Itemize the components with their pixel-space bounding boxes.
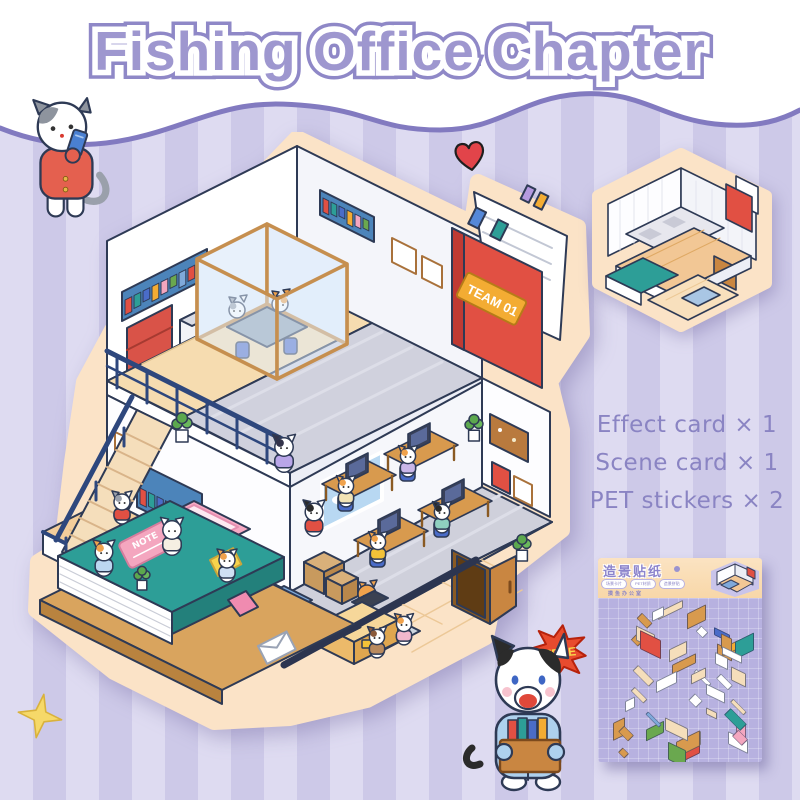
scene-card-illustration: [586, 148, 781, 358]
sticker-item: [656, 671, 677, 694]
sticker-item: [696, 626, 709, 639]
list-item: Effect card × 1: [578, 406, 796, 444]
contents-list: Effect card × 1 Scene card × 1 PET stick…: [578, 406, 796, 520]
mascot-cat-free-box: FREE: [462, 622, 597, 794]
sticker-item: [706, 683, 725, 703]
sticker-item: [706, 708, 717, 721]
sticker-item: [687, 604, 706, 629]
page-title-text: Fishing Office Chapter: [0, 20, 800, 83]
sticker-sheet-title: 造景贴纸: [603, 561, 663, 580]
sticker-sheet: 造景贴纸 场景卡片 PET材质 造景拼贴 摸鱼办公室: [598, 558, 762, 762]
badge: 造景拼贴: [659, 579, 685, 589]
sticker-item: [625, 696, 635, 712]
sticker-item: [731, 666, 746, 687]
sticker-item: [688, 694, 702, 708]
sticker-sheet-badges: 场景卡片 PET材质 造景拼贴: [601, 579, 685, 589]
hole-punch: [674, 566, 680, 572]
sticker-item: [618, 726, 634, 742]
list-item: PET stickers × 2: [578, 482, 796, 520]
badge: 场景卡片: [601, 579, 627, 589]
sheet-thumbnail-scene: [709, 559, 761, 597]
sticker-item: [665, 717, 688, 741]
mascot-cat-phone: [10, 96, 122, 224]
sticker-sheet-header: 造景贴纸 场景卡片 PET材质 造景拼贴 摸鱼办公室: [598, 558, 762, 598]
sticker-sheet-body: [598, 598, 762, 762]
list-item: Scene card × 1: [578, 444, 796, 482]
sticker-item: [633, 666, 655, 688]
badge: PET材质: [630, 579, 656, 589]
sticker-item: [640, 630, 661, 659]
sticker-item: [618, 748, 629, 759]
product-poster: { "title": "Fishing Office Chapter", "co…: [0, 0, 800, 800]
sticker-sheet-series: 摸鱼办公室: [608, 590, 643, 597]
page-title: Fishing Office Chapter Fishing Office Ch…: [0, 20, 800, 92]
heart-icon: [452, 140, 488, 174]
